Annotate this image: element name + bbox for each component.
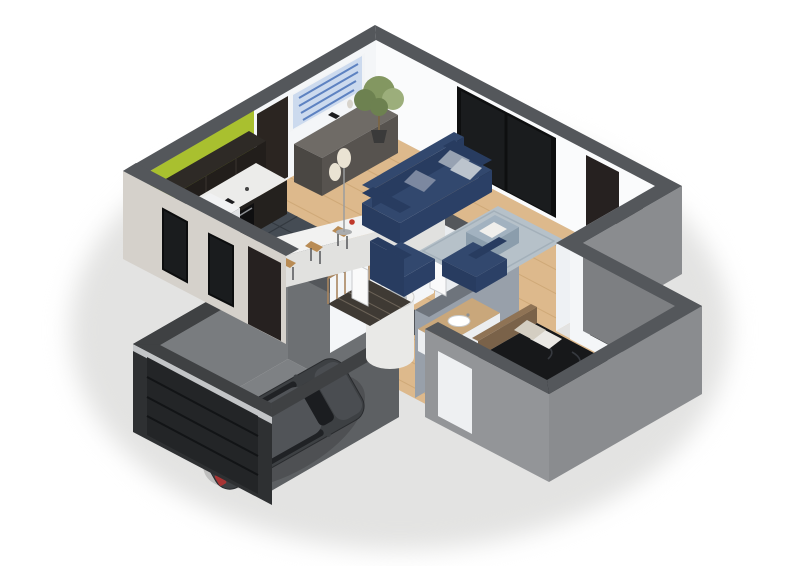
plant-foliage — [370, 98, 388, 116]
flower-vase — [349, 219, 355, 225]
lamp-shade — [329, 163, 341, 181]
counter-item — [245, 187, 249, 191]
decor-vase — [347, 100, 353, 109]
lamp-shade — [337, 148, 351, 168]
floor-plan-scene: Cutaway 3D floor plan of a one-storey ho… — [0, 0, 800, 566]
facade-window — [209, 234, 233, 306]
vanity-basin — [448, 316, 470, 327]
facade-window — [163, 209, 187, 282]
floor-plan-svg — [0, 0, 800, 566]
vanity-faucet — [466, 313, 469, 316]
